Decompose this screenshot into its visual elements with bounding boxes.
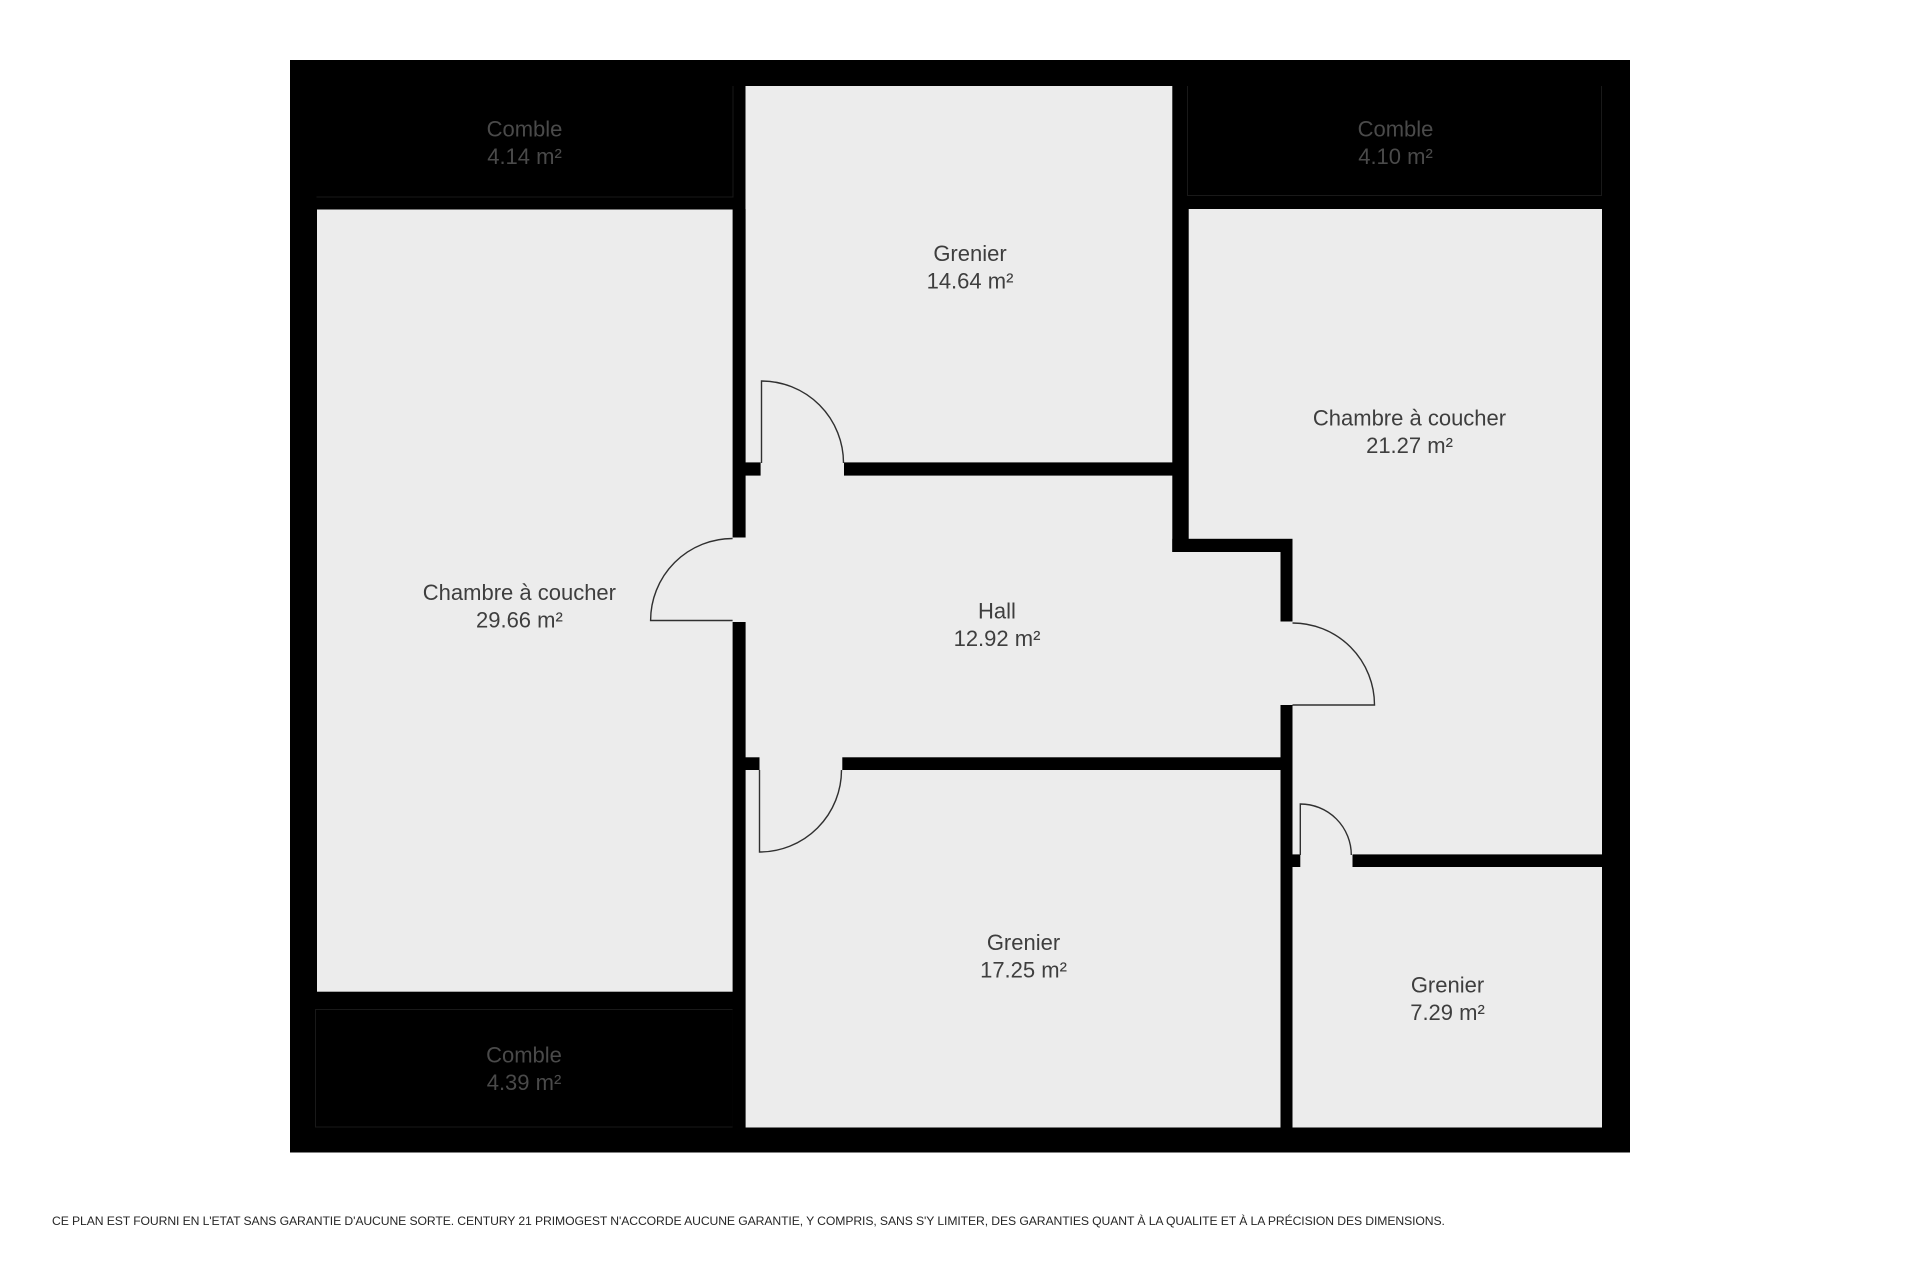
svg-text:Comble: Comble: [486, 1043, 562, 1068]
svg-text:Hall: Hall: [978, 599, 1016, 624]
svg-text:12.92 m²: 12.92 m²: [954, 626, 1041, 651]
svg-text:Comble: Comble: [487, 117, 563, 142]
svg-text:4.39 m²: 4.39 m²: [487, 1070, 562, 1095]
svg-text:7.29 m²: 7.29 m²: [1410, 1000, 1485, 1025]
svg-text:29.66 m²: 29.66 m²: [476, 608, 563, 633]
svg-text:17.25 m²: 17.25 m²: [980, 958, 1067, 983]
svg-text:Grenier: Grenier: [1411, 973, 1484, 998]
svg-text:4.14 m²: 4.14 m²: [487, 144, 562, 169]
svg-text:Grenier: Grenier: [933, 241, 1006, 266]
svg-text:Grenier: Grenier: [987, 930, 1060, 955]
svg-text:CE PLAN EST FOURNI EN L'ETAT S: CE PLAN EST FOURNI EN L'ETAT SANS GARANT…: [52, 1213, 1445, 1228]
svg-text:4.10 m²: 4.10 m²: [1358, 144, 1433, 169]
svg-text:Chambre à coucher: Chambre à coucher: [1313, 406, 1506, 431]
svg-text:14.64 m²: 14.64 m²: [927, 269, 1014, 294]
svg-text:Chambre à coucher: Chambre à coucher: [423, 580, 616, 605]
svg-text:21.27 m²: 21.27 m²: [1366, 433, 1453, 458]
svg-text:Comble: Comble: [1358, 117, 1434, 142]
